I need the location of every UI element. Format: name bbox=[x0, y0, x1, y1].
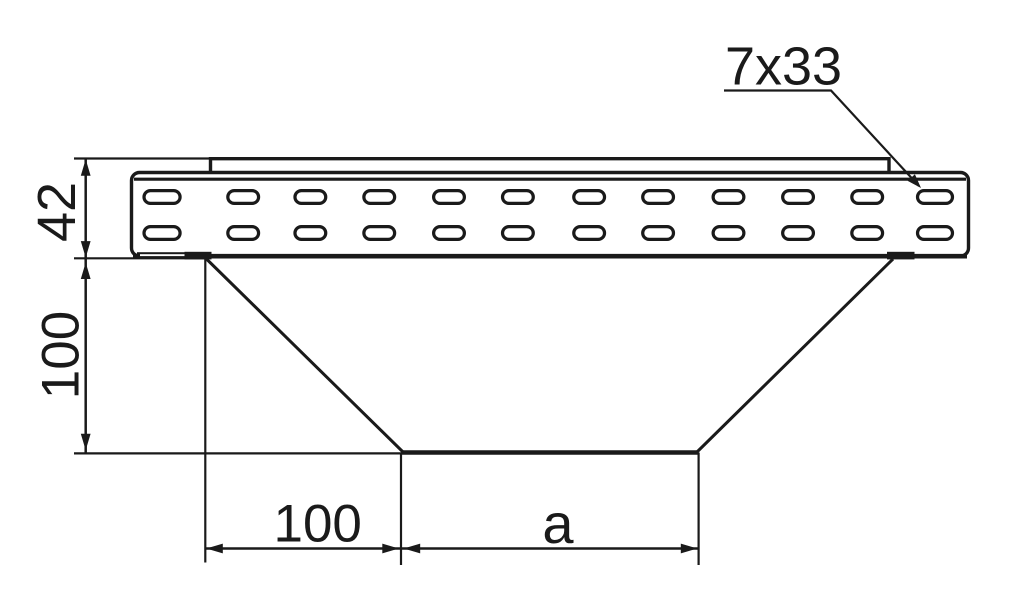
svg-text:7x33: 7x33 bbox=[725, 37, 842, 97]
svg-text:100: 100 bbox=[32, 311, 91, 399]
svg-text:100: 100 bbox=[273, 495, 361, 554]
svg-text:a: a bbox=[542, 492, 574, 555]
svg-text:42: 42 bbox=[27, 182, 87, 242]
